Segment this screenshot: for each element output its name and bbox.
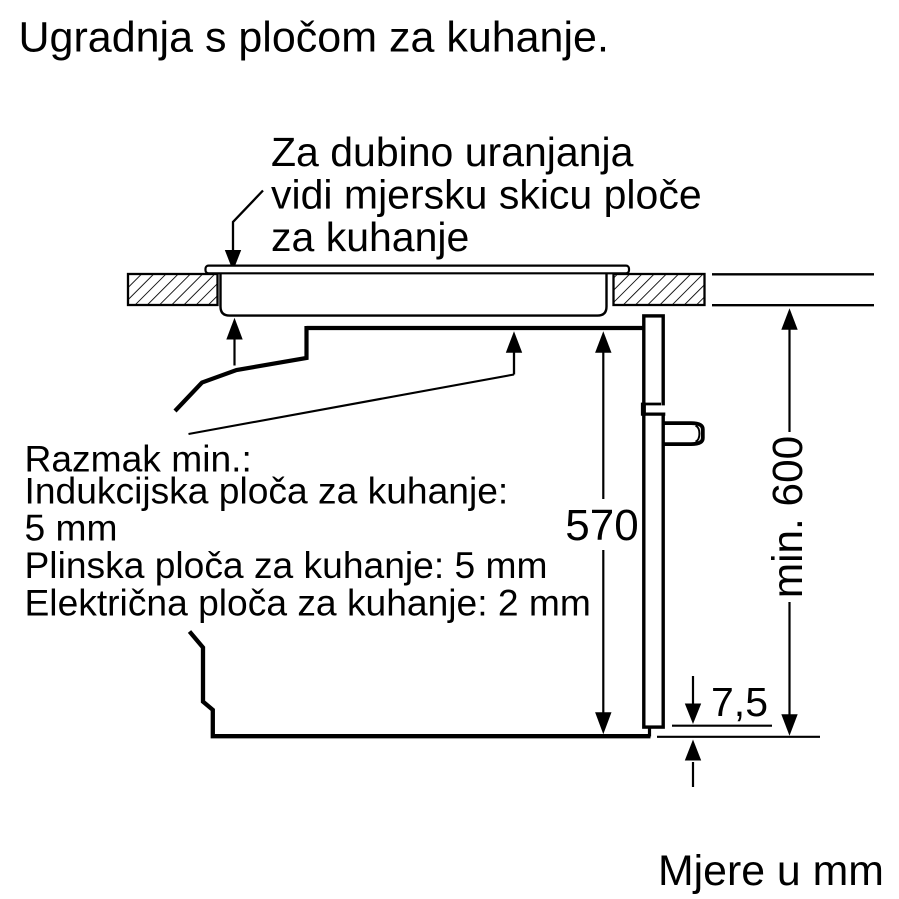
svg-text:Za dubino uranjanja: Za dubino uranjanja <box>271 129 634 175</box>
svg-text:Ugradnja s pločom za kuhanje.: Ugradnja s pločom za kuhanje. <box>19 14 609 62</box>
svg-text:7,5: 7,5 <box>711 679 768 725</box>
svg-text:5 mm: 5 mm <box>25 507 118 549</box>
svg-text:Indukcijska ploča za kuhanje:: Indukcijska ploča za kuhanje: <box>25 469 509 511</box>
svg-text:Plinska ploča za kuhanje: 5 mm: Plinska ploča za kuhanje: 5 mm <box>25 544 548 586</box>
svg-text:za kuhanje: za kuhanje <box>271 214 469 260</box>
svg-text:min. 600: min. 600 <box>764 436 811 598</box>
svg-text:vidi mjersku skicu ploče: vidi mjersku skicu ploče <box>271 172 702 218</box>
svg-text:570: 570 <box>565 501 638 550</box>
svg-text:Električna ploča za kuhanje: 2: Električna ploča za kuhanje: 2 mm <box>25 582 591 624</box>
svg-text:Mjere u mm: Mjere u mm <box>658 847 884 895</box>
